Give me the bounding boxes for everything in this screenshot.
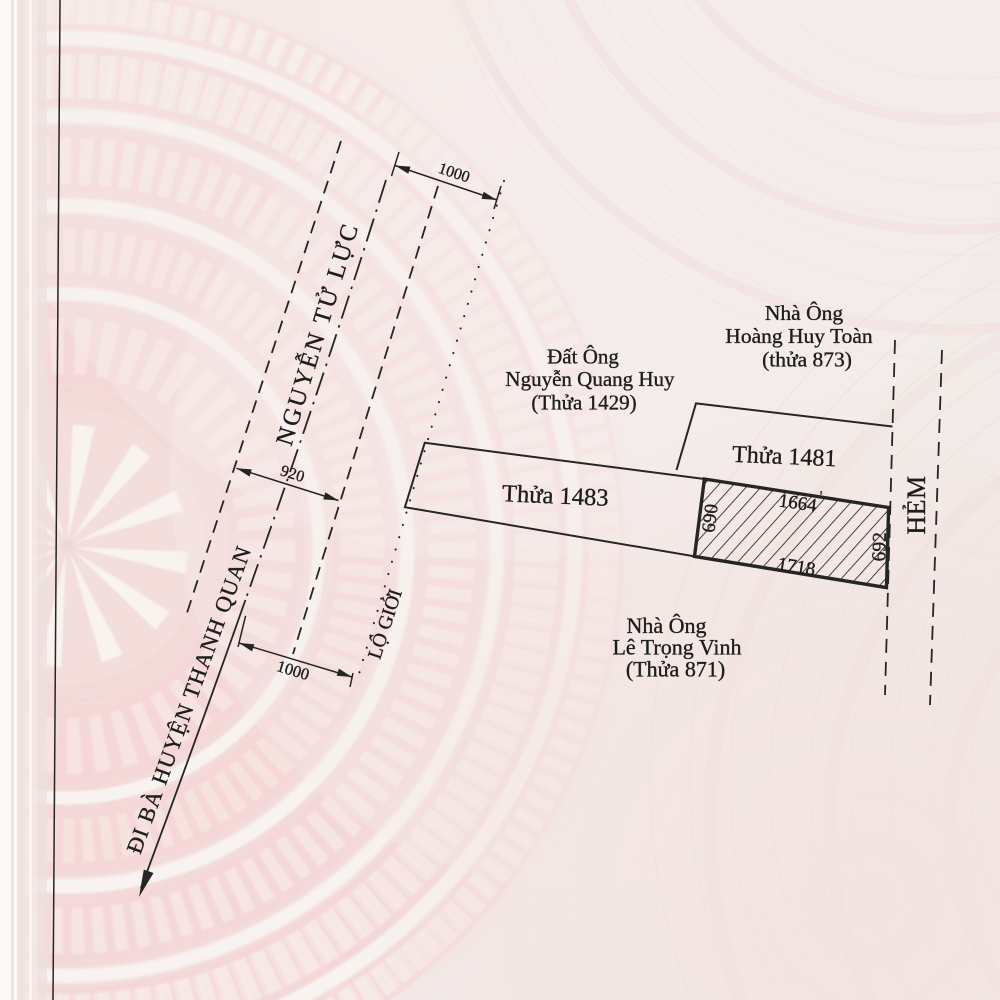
svg-text:Đất Ông: Đất Ông (547, 345, 619, 369)
svg-text:692: 692 (869, 532, 891, 562)
svg-text:(Thửa 1429): (Thửa 1429) (531, 391, 636, 415)
svg-text:HẺM: HẺM (902, 475, 931, 534)
svg-text:690: 690 (698, 503, 722, 534)
svg-text:Hoàng Huy Toàn: Hoàng Huy Toàn (725, 324, 873, 348)
svg-text:Nguyễn Quang Huy: Nguyễn Quang Huy (505, 367, 675, 391)
svg-text:Thửa 1481: Thửa 1481 (732, 442, 837, 473)
svg-text:Nhà Ông: Nhà Ông (765, 301, 843, 325)
svg-text:Thửa 1483: Thửa 1483 (502, 480, 610, 512)
svg-text:(Thửa 871): (Thửa 871) (626, 657, 725, 682)
svg-text:(thửa 873): (thửa 873) (762, 348, 852, 372)
